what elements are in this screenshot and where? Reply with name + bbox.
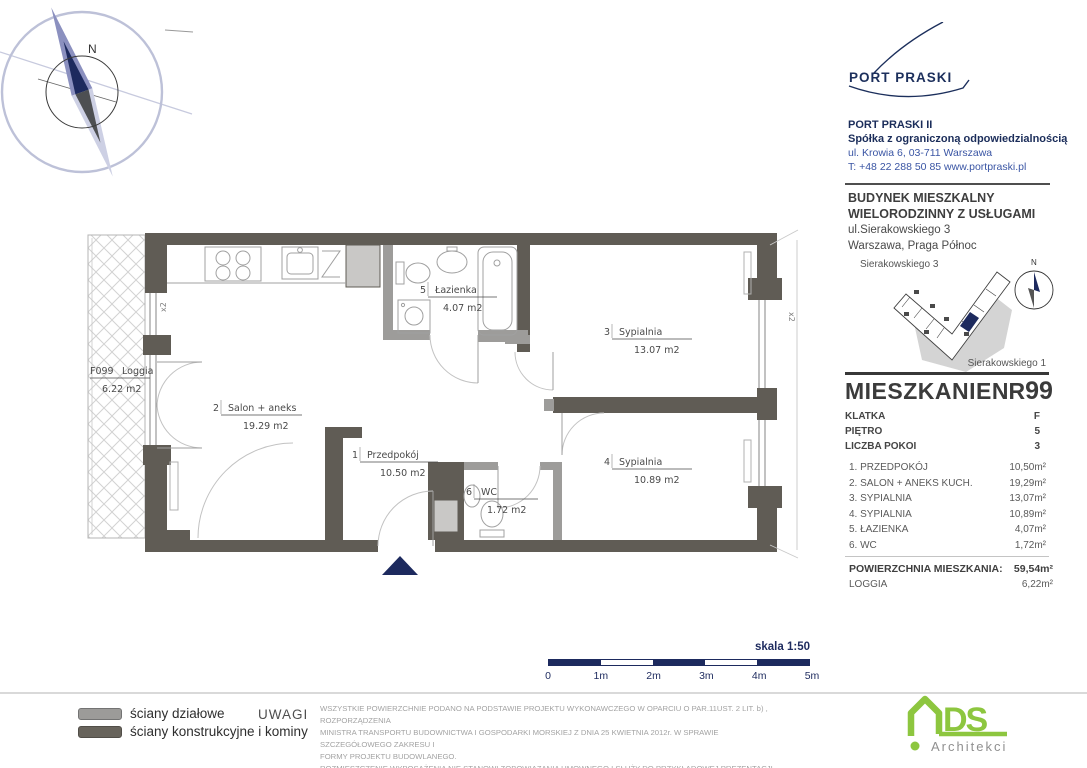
- compass-rose-icon: N: [0, 0, 196, 196]
- legend-label-partition: ściany działowe: [130, 706, 225, 722]
- divider: [845, 372, 1049, 375]
- scale-bar: [548, 659, 810, 666]
- legend-swatch-structural: [78, 726, 122, 738]
- map-compass-icon: N: [1015, 258, 1053, 309]
- svg-text:Sypialnia: Sypialnia: [619, 457, 662, 468]
- scale-tick: 0: [545, 670, 551, 682]
- room-row: 3. SYPIALNIA 13,07m²: [845, 491, 1049, 507]
- company-address: ul. Krowia 6, 03-711 Warszawa: [848, 146, 1067, 160]
- scale-tick: 4m: [752, 670, 767, 682]
- ads-architekci-logo: DS Architekci: [903, 694, 1023, 754]
- street-label-top: Sierakowskiego 3: [860, 259, 939, 270]
- loggia-label: LOGGIA: [849, 577, 887, 592]
- windows: [150, 293, 765, 486]
- floor-plan-sheet: N: [0, 0, 1087, 768]
- room-label-salon: 2 Salon + aneks 19.29 m2: [213, 400, 302, 432]
- svg-text:F099: F099: [90, 366, 114, 377]
- building-title-2: WIELORODZINNY Z USŁUGAMI: [848, 206, 1035, 222]
- room-row: 4. SYPIALNIA 10,89m²: [845, 507, 1049, 523]
- svg-text:Salon + aneks: Salon + aneks: [228, 403, 297, 414]
- detail-label: PIĘTRO: [845, 424, 882, 439]
- building-footprint: [894, 272, 1012, 372]
- company-type: Spółka z ograniczoną odpowiedzialnością: [848, 132, 1067, 146]
- svg-text:6: 6: [466, 487, 472, 498]
- loggia-value: 6,22m²: [1022, 577, 1053, 592]
- divider: [845, 183, 1050, 185]
- detail-value: 5: [1034, 424, 1040, 439]
- window-count-label-right: x2: [787, 312, 796, 322]
- apartment-title: MIESZKANIE NR 99: [845, 377, 1049, 406]
- total-value: 59,54m²: [1014, 561, 1053, 577]
- map-north-label: N: [1031, 258, 1037, 267]
- detail-row-pietro: PIĘTRO 5: [845, 424, 1049, 439]
- svg-text:13.07 m2: 13.07 m2: [634, 345, 680, 356]
- loggia-area-row: LOGGIA 6,22m²: [845, 577, 1056, 592]
- scale-tick: 1m: [594, 670, 609, 682]
- room-label: 5. ŁAZIENKA: [849, 522, 908, 538]
- legend-label-structural: ściany konstrukcyjne i kominy: [130, 724, 308, 740]
- apartment-number: 99: [1025, 377, 1055, 406]
- window-count-label-left: x2: [159, 302, 168, 312]
- svg-text:Sypialnia: Sypialnia: [619, 327, 662, 338]
- scale-tick: 2m: [646, 670, 661, 682]
- door-swings: [157, 335, 604, 546]
- svg-text:2: 2: [213, 403, 219, 414]
- room-label-wc: 6 WC 1.72 m2: [466, 484, 538, 516]
- legend-swatch-partition: [78, 708, 122, 720]
- ads-subtitle: Architekci: [931, 739, 1007, 754]
- company-name: PORT PRASKI II: [848, 118, 1067, 132]
- scale-ticks: 0 1m 2m 3m 4m 5m: [548, 670, 812, 684]
- scale-tick: 3m: [699, 670, 714, 682]
- svg-text:5: 5: [420, 285, 426, 296]
- svg-text:Przedpokój: Przedpokój: [367, 450, 419, 461]
- detail-row-klatka: KLATKA F: [845, 409, 1049, 424]
- room-area: 13,07m²: [1009, 491, 1046, 507]
- room-label: 2. SALON + ANEKS KUCH.: [849, 476, 973, 492]
- divider: [845, 556, 1049, 557]
- room-label: 4. SYPIALNIA: [849, 507, 912, 523]
- room-row: 1. PRZEDPOKÓJ 10,50m²: [845, 460, 1049, 476]
- scale-tick: 5m: [805, 670, 820, 682]
- room-label: 3. SYPIALNIA: [849, 491, 912, 507]
- room-label-sypialnia3: 3 Sypialnia 13.07 m2: [604, 324, 692, 356]
- kitchen-fixtures: [167, 247, 346, 283]
- svg-text:19.29 m2: 19.29 m2: [243, 421, 289, 432]
- total-area-row: POWIERZCHNIA MIESZKANIA: 59,54m²: [845, 561, 1056, 577]
- svg-text:4.07 m2: 4.07 m2: [443, 303, 482, 314]
- notes-text: WSZYSTKIE POWIERZCHNIE PODANO NA PODSTAW…: [320, 703, 790, 768]
- street-label-bottom: Sierakowskiego 1: [968, 358, 1047, 369]
- building-title-1: BUDYNEK MIESZKALNY: [848, 190, 1035, 206]
- detail-row-pokoje: LICZBA POKOI 3: [845, 439, 1049, 454]
- room-label-sypialnia4: 4 Sypialnia 10.89 m2: [604, 454, 692, 486]
- room-row: 6. WC 1,72m²: [845, 538, 1049, 554]
- room-area: 10,89m²: [1009, 507, 1046, 523]
- room-area: 19,29m²: [1009, 476, 1046, 492]
- detail-label: KLATKA: [845, 409, 885, 424]
- svg-text:Loggia: Loggia: [122, 366, 153, 377]
- room-label-lazienka: 5 Łazienka 4.07 m2: [420, 282, 497, 314]
- ads-wordmark: DS: [943, 701, 988, 739]
- svg-text:4: 4: [604, 457, 610, 468]
- apartment-details: KLATKA F PIĘTRO 5 LICZBA POKOI 3: [845, 409, 1049, 454]
- developer-info: PORT PRASKI II Spółka z ograniczoną odpo…: [848, 118, 1067, 174]
- room-label-przedpokoj: 1 Przedpokój 10.50 m2: [352, 447, 438, 479]
- svg-text:Łazienka: Łazienka: [434, 285, 477, 296]
- svg-text:1: 1: [352, 450, 358, 461]
- svg-text:10.89 m2: 10.89 m2: [634, 475, 680, 486]
- building-info: BUDYNEK MIESZKALNY WIELORODZINNY Z USŁUG…: [848, 190, 1035, 254]
- room-area: 10,50m²: [1009, 460, 1046, 476]
- building-address: ul.Sierakowskiego 3: [848, 222, 1035, 238]
- uwagi-label: UWAGI: [258, 707, 308, 722]
- location-map: Sierakowskiego 3 N Sierakowskiego 1: [850, 252, 1055, 372]
- room-label: 6. WC: [849, 538, 877, 554]
- room-area: 4,07m²: [1015, 522, 1046, 538]
- detail-label: LICZBA POKOI: [845, 439, 916, 454]
- scale-label: skala 1:50: [700, 641, 810, 653]
- room-row: 2. SALON + ANEKS KUCH. 19,29m²: [845, 476, 1049, 492]
- detail-value: 3: [1034, 439, 1040, 454]
- apartment-nr-label: NR: [992, 378, 1025, 405]
- company-phone-web[interactable]: T: +48 22 288 50 85 www.portpraski.pl: [848, 160, 1067, 174]
- room-area-list: 1. PRZEDPOKÓJ 10,50m² 2. SALON + ANEKS K…: [845, 460, 1049, 553]
- room-area: 1,72m²: [1015, 538, 1046, 554]
- svg-text:3: 3: [604, 327, 610, 338]
- room-row: 5. ŁAZIENKA 4,07m²: [845, 522, 1049, 538]
- svg-text:6.22 m2: 6.22 m2: [102, 384, 141, 395]
- detail-value: F: [1034, 409, 1040, 424]
- entrance-marker-icon: [382, 556, 418, 575]
- svg-text:WC: WC: [481, 487, 497, 498]
- logo-wordmark: PORT PRASKI: [849, 70, 952, 85]
- port-praski-logo: PORT PRASKI: [843, 22, 993, 102]
- north-label: N: [88, 42, 97, 56]
- room-label: 1. PRZEDPOKÓJ: [849, 460, 928, 476]
- svg-text:10.50 m2: 10.50 m2: [380, 468, 426, 479]
- total-label: POWIERZCHNIA MIESZKANIA:: [849, 561, 1003, 577]
- svg-text:1.72 m2: 1.72 m2: [487, 505, 526, 516]
- apartment-floor-plan: 2 Salon + aneks 19.29 m2 1 Przedpokój 10…: [60, 218, 810, 590]
- apartment-title-word: MIESZKANIE: [845, 378, 992, 405]
